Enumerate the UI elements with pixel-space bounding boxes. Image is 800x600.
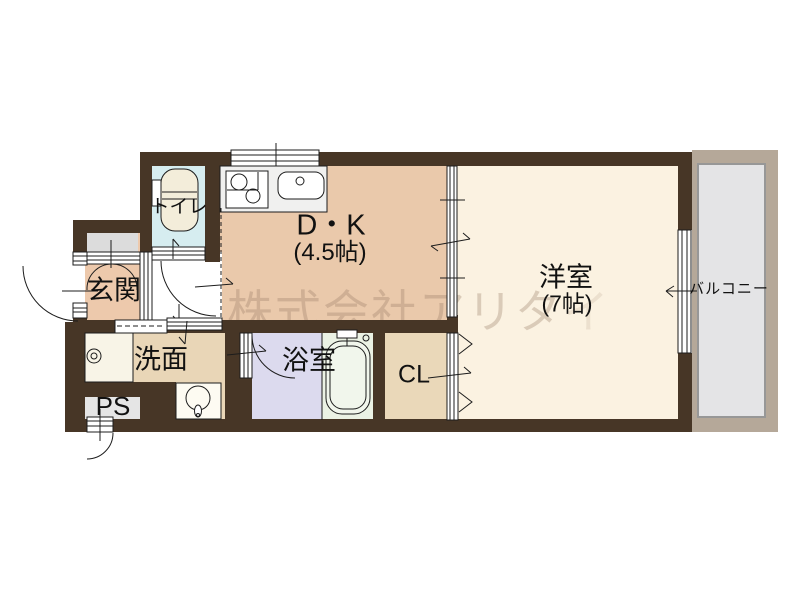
label-yoshitsu: 洋室 (539, 265, 593, 292)
genkan-step (140, 252, 152, 320)
label-dk-size: (4.5帖) (293, 241, 366, 265)
label-toilet: トイレ (150, 198, 207, 217)
kitchen-sink-icon (278, 172, 324, 199)
washbasin-icon (176, 383, 221, 419)
washing-machine-icon (85, 333, 133, 382)
closet-bifold-door (428, 333, 472, 420)
kitchen-window (231, 143, 319, 166)
hall-dk-opening (195, 208, 233, 318)
label-genkan: 玄関 (87, 278, 141, 305)
floorplan: 株式会社アリタイ (0, 0, 800, 600)
label-closet: CL (398, 363, 430, 388)
label-yoshitsu-size: (7帖) (541, 293, 592, 316)
label-bath: 浴室 (282, 348, 336, 375)
toilet-door (152, 247, 216, 316)
label-balcony: バルコニー (689, 282, 769, 297)
label-ps: PS (96, 393, 131, 419)
stove-icon (226, 171, 268, 208)
dk-partition-door (431, 166, 470, 317)
label-senmen: 洗面 (134, 347, 188, 374)
label-dk: D・K (296, 212, 365, 241)
